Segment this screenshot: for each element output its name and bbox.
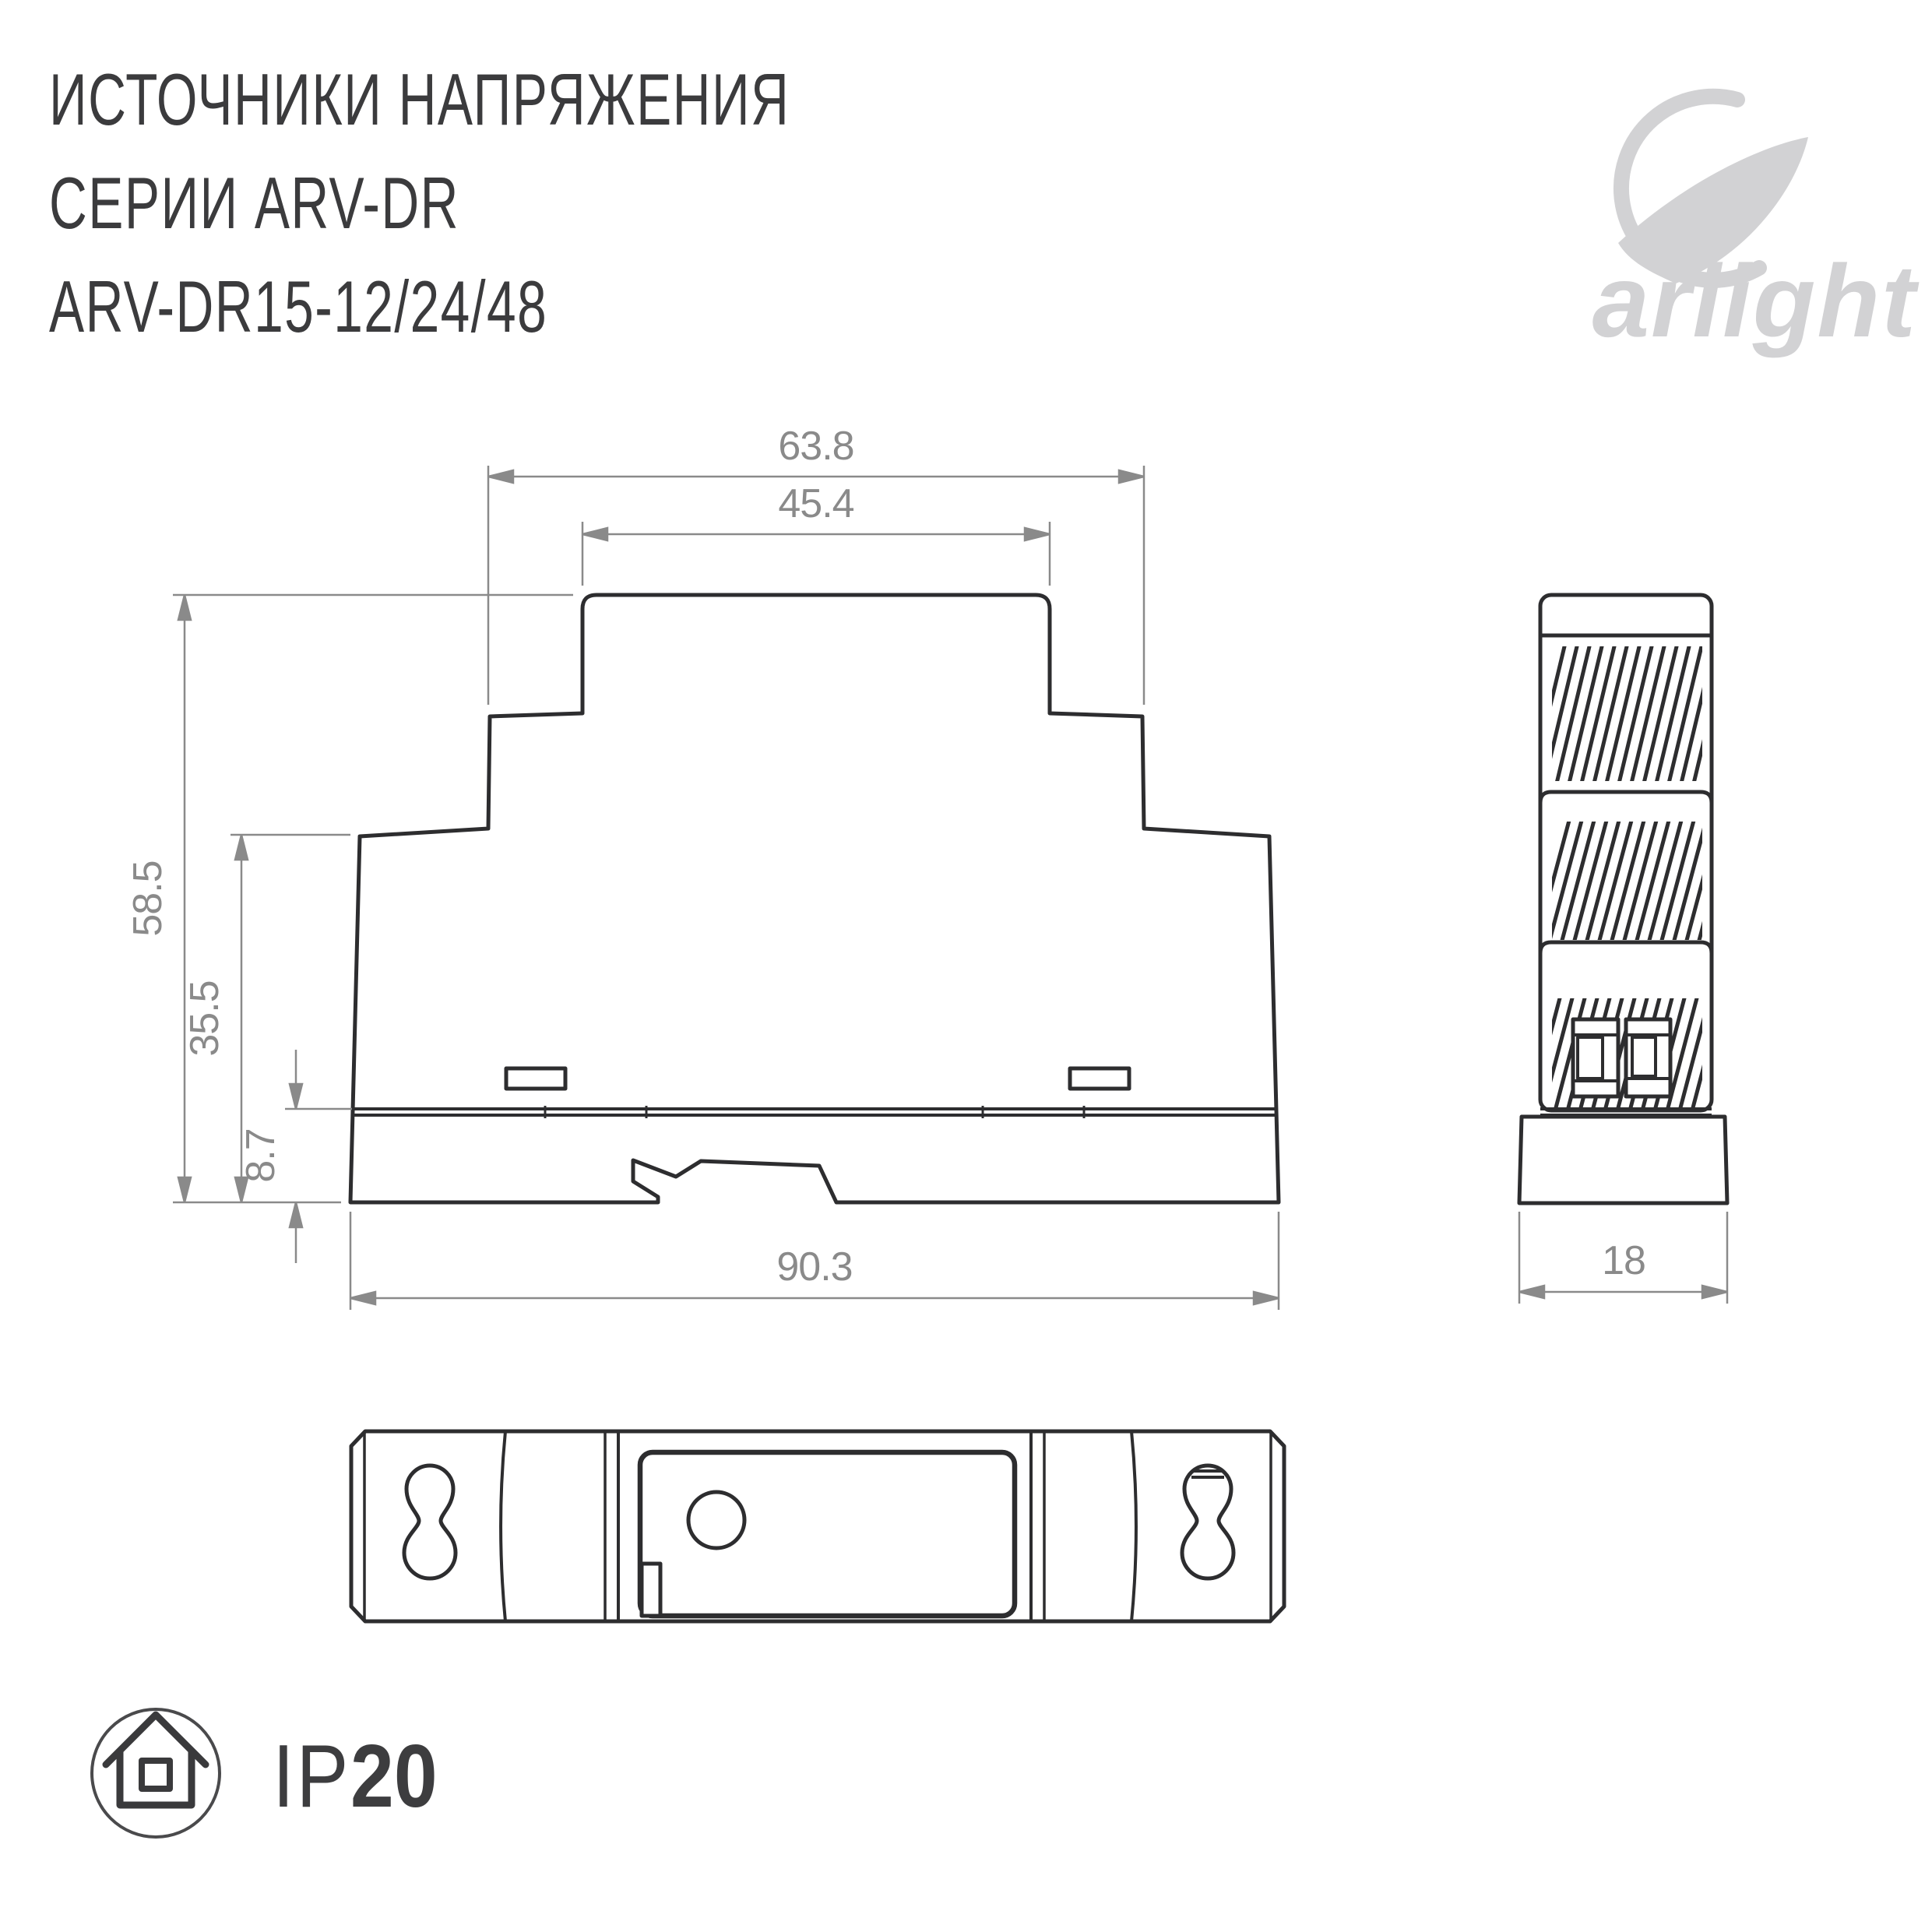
front-clip-left [506,1068,565,1089]
dim-overall-width: 90.3 [350,1212,1279,1310]
dim-rail-height: 8.7 [238,1050,352,1263]
badge-circle [92,1709,220,1837]
title-line-2: СЕРИИ ARV-DR [49,163,459,244]
svg-text:8.7: 8.7 [238,1128,283,1182]
front-outline [350,595,1279,1202]
side-din-foot [1519,1117,1727,1203]
bottom-label-tab [642,1564,660,1616]
title-line-1: ИСТОЧНИКИ НАПРЯЖЕНИЯ [49,59,790,140]
title-line-3: ARV-DR15-12/24/48 [49,266,547,347]
ip20-badge: IP20 [92,1709,438,1837]
logo-wordmark: arlight [1592,244,1920,358]
side-view [1519,595,1732,1203]
svg-text:45.4: 45.4 [778,481,853,526]
dim-side-width: 18 [1519,1212,1727,1304]
technical-drawing-page: ИСТОЧНИКИ НАПРЯЖЕНИЯ СЕРИИ ARV-DR ARV-DR… [0,0,1932,1932]
bottom-label-hole [688,1492,744,1548]
svg-text:18: 18 [1602,1238,1645,1283]
front-view [350,595,1279,1202]
house-icon [106,1715,206,1805]
svg-text:58.5: 58.5 [125,860,171,936]
svg-text:90.3: 90.3 [776,1244,852,1290]
bottom-view [351,1431,1284,1621]
page-title: ИСТОЧНИКИ НАПРЯЖЕНИЯ СЕРИИ ARV-DR ARV-DR… [49,59,790,347]
arlight-logo: arlight [1592,97,1920,358]
front-clip-right [1070,1068,1129,1089]
dim-top-inner: 45.4 [582,481,1050,586]
svg-text:63.8: 63.8 [778,424,853,469]
ip-rating-text: IP20 [273,1726,438,1825]
svg-text:35.5: 35.5 [182,980,227,1056]
